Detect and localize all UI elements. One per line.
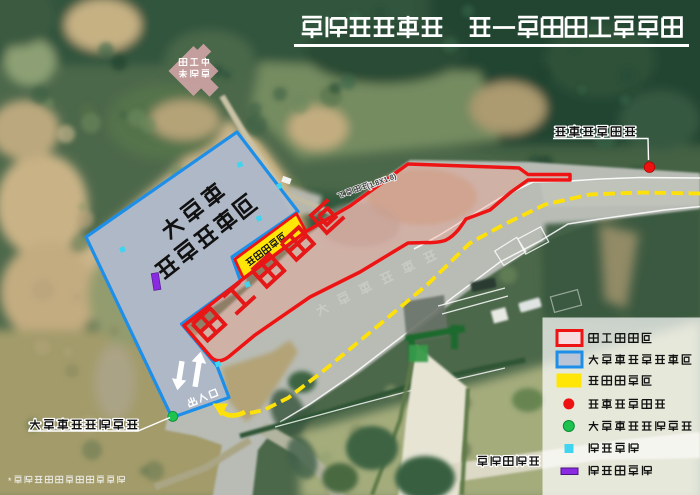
svg-text:*: * <box>8 476 12 486</box>
